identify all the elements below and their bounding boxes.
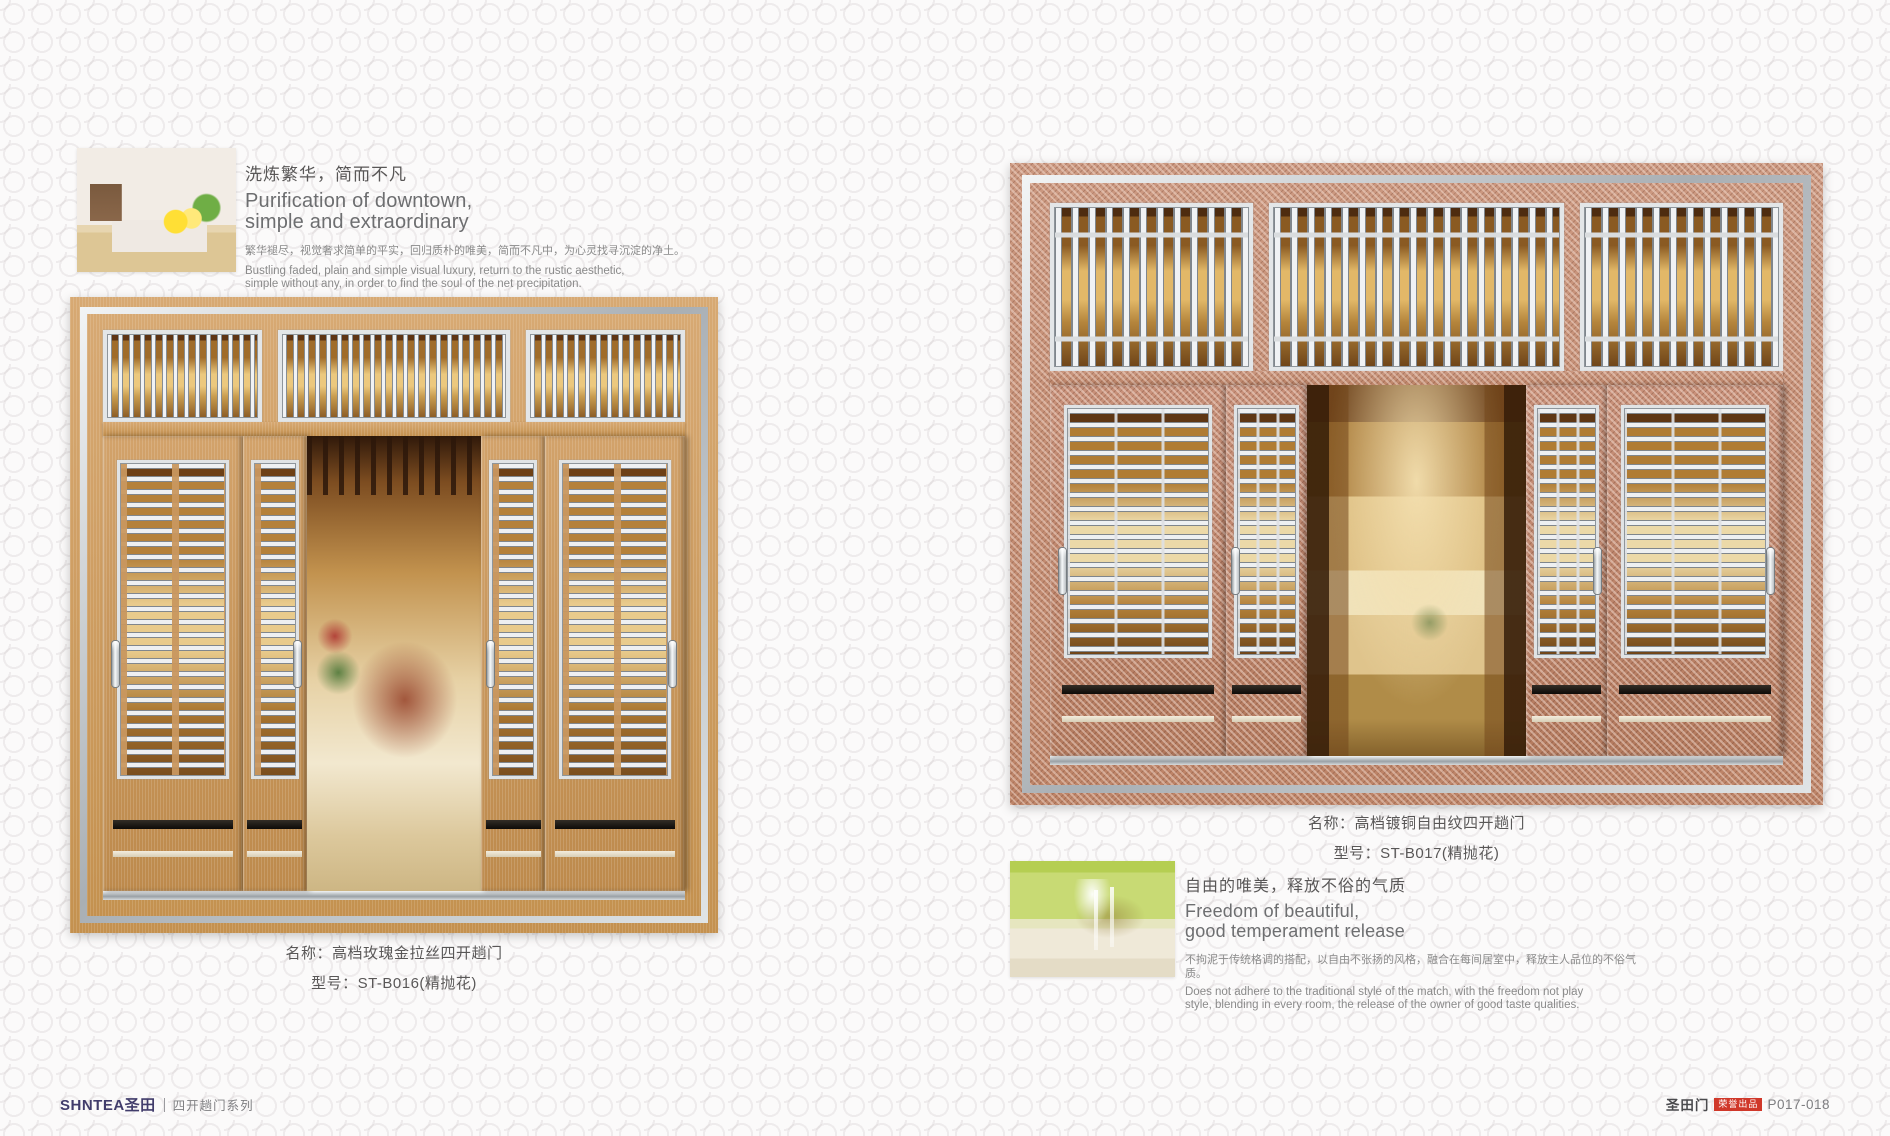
door-frame-wood [87,314,701,916]
door-opening [307,436,482,891]
outro-text-block: 自由的唯美，释放不俗的气质 Freedom of beautiful, good… [1185,872,1655,1012]
door-handle [1232,548,1239,594]
door-handle [487,641,494,687]
panel-grille-window [1621,405,1769,658]
intro-title-cn: 洗炼繁华，简而不凡 [245,160,695,185]
panel-grille-window [559,460,671,779]
door-frame-silver [1022,175,1811,793]
panel-kick-stripe [1062,685,1213,694]
door-handle [1767,548,1774,594]
panel-kick-stripe-light [1232,716,1301,722]
transom-grille [526,330,685,422]
door-sill [1050,756,1783,765]
door-panel [1607,385,1783,756]
door-panels-row [103,436,685,891]
door-rail [1050,371,1783,385]
door-panel [1050,385,1226,756]
outro-body-en-line2: style, blending in every room, the relea… [1185,999,1655,1012]
door-frame-copper [1030,183,1803,785]
panel-kick-stripe [1619,685,1770,694]
panel-kick-stripe [113,820,233,829]
panel-kick-stripe-light [486,851,541,857]
intro-photo-livingroom [77,148,236,272]
footer-divider [164,1098,165,1112]
product-name: 名称：高档镀铜自由纹四开趟门 [1010,812,1823,833]
transom-grille [103,330,262,422]
transom-grille [278,330,510,422]
footer-left: SHNTEA圣田 四开趟门系列 [60,1094,254,1115]
product-image-door-st-b017 [1010,163,1823,805]
panel-kick-stripe [1532,685,1601,694]
transom-grille [1580,203,1783,371]
door-handle [669,641,676,687]
door-handle [1594,548,1601,594]
door-transom [103,330,685,422]
door-sill [103,891,685,900]
catalog-spread: 洗炼繁华，简而不凡 Purification of downtown, simp… [0,0,1890,1136]
transom-mullion [1253,203,1269,371]
transom-mullion [510,330,526,422]
transom-mullion [262,330,278,422]
series-name: 四开趟门系列 [173,1095,254,1114]
door-handle [294,641,301,687]
door-panel [1226,385,1307,756]
brand-logo: SHNTEA圣田 [60,1094,156,1115]
intro-body-en-line2: simple without any, in order to find the… [245,278,695,291]
product-model: 型号：ST-B016(精抛花) [70,972,718,993]
panel-kick-stripe [247,820,302,829]
outro-body-cn: 不拘泥于传统格调的搭配，以自由不张扬的风格，融合在每间居室中，释放主人品位的不俗… [1185,953,1655,981]
honor-badge: 荣誉出品 [1714,1098,1762,1111]
door-panel [481,436,545,891]
panel-grille-window [117,460,229,779]
intro-text-block: 洗炼繁华，简而不凡 Purification of downtown, simp… [245,160,695,291]
intro-body-en-line1: Bustling faded, plain and simple visual … [245,265,695,278]
panel-kick-stripe-light [1619,716,1770,722]
panel-grille-window [489,460,537,779]
panel-grille-window [251,460,299,779]
outro-body-en-line1: Does not adhere to the traditional style… [1185,986,1655,999]
outro-photo-wineglasses [1010,861,1175,977]
door-panel [103,436,243,891]
footer-brand-name: 圣田门 [1666,1094,1710,1114]
intro-body-cn: 繁华褪尽，视觉奢求简单的平实，回归质朴的唯美，简而不凡中，为心灵找寻沉淀的净土。 [245,244,695,258]
door-handle [1059,548,1066,594]
panel-kick-stripe-light [113,851,233,857]
outro-title-en-line1: Freedom of beautiful, [1185,901,1655,921]
transom-mullion [1564,203,1580,371]
transom-grille [1269,203,1565,371]
door-handle [112,641,119,687]
footer-right: 圣田门 荣誉出品 P017-018 [1666,1094,1830,1114]
door-rail [103,422,685,436]
panel-kick-stripe-light [1532,716,1601,722]
transom-grille [1050,203,1253,371]
door-opening [1307,385,1527,756]
panel-kick-stripe-light [1062,716,1213,722]
interior-photo-chinese-room [307,436,482,891]
door-frame-silver [80,307,708,923]
door-panels-row [1050,385,1783,756]
panel-grille-window [1234,405,1299,658]
panel-kick-stripe [1232,685,1301,694]
intro-title-en-line2: simple and extraordinary [245,212,695,233]
door-panel [243,436,307,891]
door-panel [545,436,685,891]
product-caption-st-b016: 名称：高档玫瑰金拉丝四开趟门 型号：ST-B016(精抛花) [70,942,718,1002]
intro-title-en-line1: Purification of downtown, [245,191,695,212]
product-name: 名称：高档玫瑰金拉丝四开趟门 [70,942,718,963]
panel-grille-window [1534,405,1599,658]
panel-kick-stripe-light [555,851,675,857]
page-number: P017-018 [1767,1097,1830,1112]
door-transom [1050,203,1783,371]
interior-photo-luxury-hall [1307,385,1527,756]
panel-kick-stripe [555,820,675,829]
outro-title-en-line2: good temperament release [1185,921,1655,941]
panel-kick-stripe-light [247,851,302,857]
outro-title-cn: 自由的唯美，释放不俗的气质 [1185,872,1655,896]
product-image-door-st-b016 [70,297,718,933]
product-model: 型号：ST-B017(精抛花) [1010,842,1823,863]
door-panel [1526,385,1607,756]
panel-kick-stripe [486,820,541,829]
panel-grille-window [1064,405,1212,658]
